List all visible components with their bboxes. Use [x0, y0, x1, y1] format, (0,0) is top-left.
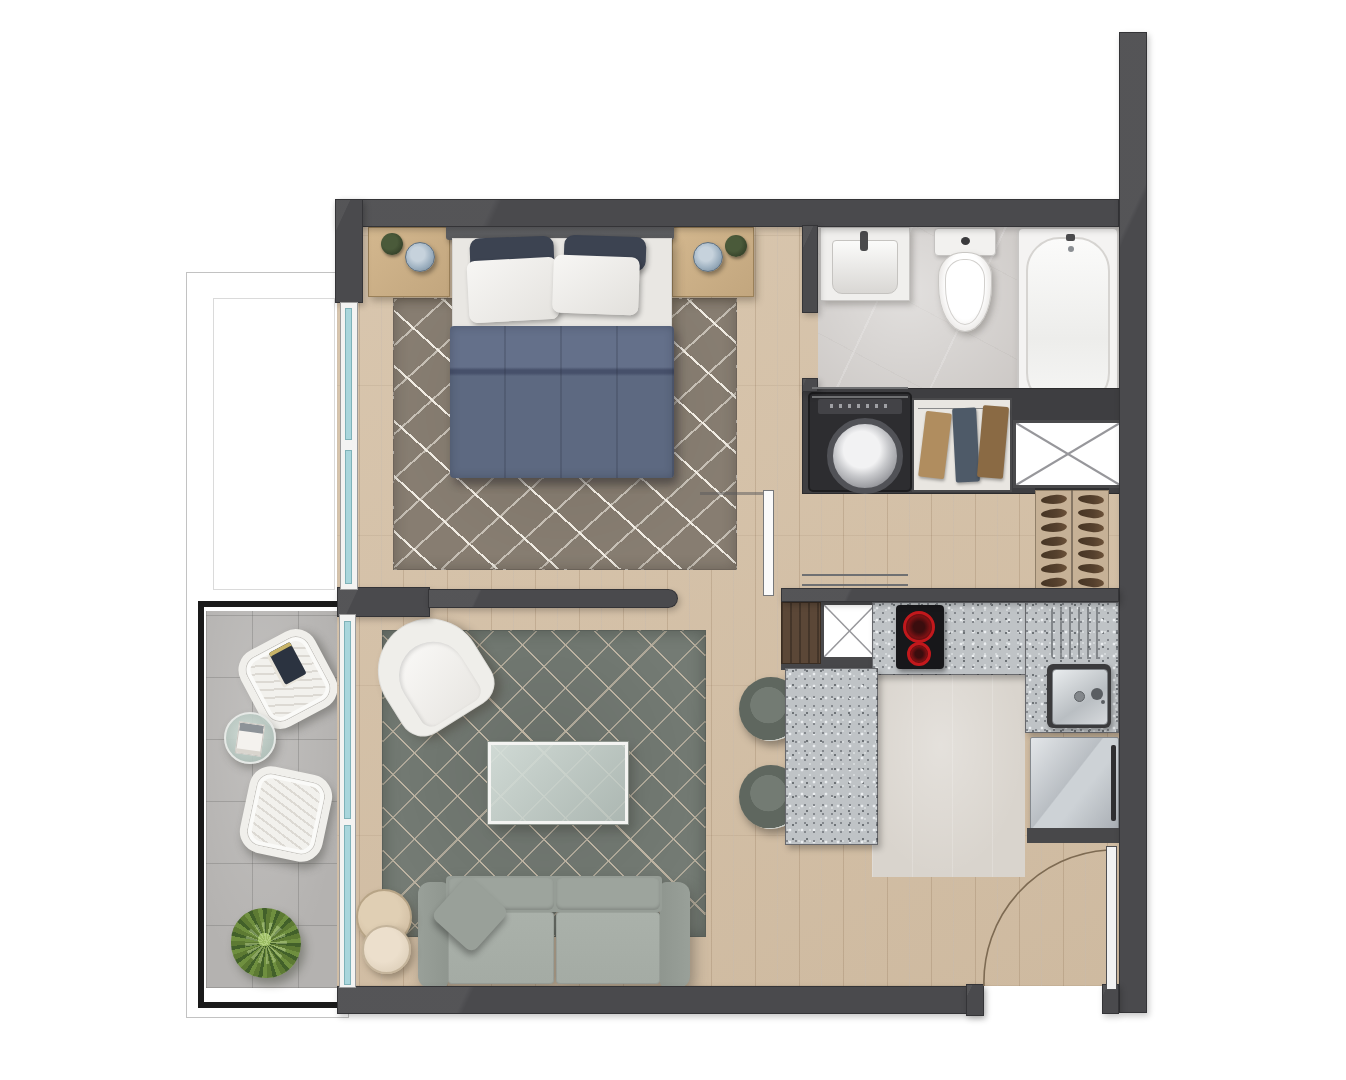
- shoe-icon: [1077, 494, 1104, 505]
- floor-plan-canvas: [0, 0, 1346, 1080]
- table-lamp-icon: [693, 242, 723, 272]
- chair-blanket: [250, 776, 322, 851]
- refrigerator: [1030, 737, 1119, 830]
- drain-icon: [1068, 246, 1074, 252]
- balcony-side-table: [224, 712, 276, 764]
- faucet-icon: [860, 231, 868, 251]
- potted-plant: [231, 908, 301, 978]
- shaft-x-icon: [824, 605, 875, 657]
- folded-clothes: [952, 407, 980, 482]
- wall-divider-block: [337, 587, 430, 617]
- nightstand-left: [368, 227, 450, 297]
- wall-bathroom-left: [802, 225, 818, 313]
- shoe-icon: [1077, 536, 1104, 547]
- shoe-icon: [1077, 522, 1104, 533]
- balcony-glass-wall: [339, 614, 356, 988]
- shoe-pair-row: [1035, 548, 1109, 562]
- sink-drain-icon: [1074, 691, 1085, 702]
- peninsula-counter: [785, 668, 878, 845]
- sofa-seat-cushion: [556, 912, 660, 984]
- entrance-door-swing-arc: [972, 842, 1122, 992]
- shoe-pair-row: [1035, 562, 1109, 576]
- sofa: [418, 876, 690, 990]
- shoe-icon: [1040, 577, 1067, 588]
- bedroom-sliding-door: [763, 490, 774, 596]
- shoe-icon: [1040, 494, 1067, 505]
- burner-icon: [903, 611, 935, 643]
- shoe-pair-row: [1035, 534, 1109, 548]
- plant-pot-icon: [381, 233, 403, 255]
- bathtub-basin: [1026, 237, 1110, 407]
- wall-top: [335, 199, 1119, 227]
- plant-pot-icon: [725, 235, 747, 257]
- sliding-door-track: [700, 492, 764, 495]
- shoe-icon: [1077, 577, 1104, 588]
- side-table-small: [362, 925, 411, 974]
- shoe-pair-row: [1035, 493, 1109, 507]
- sofa-back-cushion: [556, 878, 660, 910]
- bed-pillow-white: [552, 255, 640, 316]
- sofa-armrest: [660, 882, 690, 988]
- service-shaft-kitchen: [821, 602, 878, 660]
- wall-kitchen: [781, 588, 1119, 602]
- linen-closet: [912, 398, 1012, 492]
- shoe-icon: [1040, 536, 1067, 547]
- washing-machine: [808, 392, 912, 492]
- cooktop: [896, 605, 944, 669]
- fridge-handle: [1111, 745, 1116, 821]
- coffee-table: [488, 742, 628, 824]
- bed-duvet: [450, 326, 674, 478]
- burner-icon: [907, 642, 931, 666]
- shaft-x-icon: [1016, 423, 1120, 485]
- entrance-door-leaf: [1106, 846, 1117, 990]
- kitchen-tall-cabinet: [781, 602, 821, 664]
- glass-door-pane: [344, 621, 351, 819]
- kitchen-sink: [1047, 664, 1111, 728]
- service-shaft-bathroom: [1013, 420, 1123, 488]
- fridge-cabinet-edge: [1027, 828, 1119, 843]
- shoe-icon: [1040, 563, 1067, 574]
- shoe-icon: [1040, 522, 1067, 533]
- wall-right: [1119, 32, 1147, 1013]
- bathroom-sliding-door: [812, 387, 908, 398]
- shoe-icon: [1040, 508, 1067, 519]
- shoe-icon: [1077, 549, 1104, 560]
- shoe-icon: [1077, 563, 1104, 574]
- wall-left-upper: [335, 199, 363, 303]
- wall-bedroom-living-divider: [428, 589, 678, 608]
- shoe-pair-row: [1035, 520, 1109, 534]
- book-on-table: [235, 721, 265, 756]
- shoe-pair-row: [1035, 507, 1109, 521]
- folded-clothes: [918, 411, 952, 480]
- washer-control-panel: [818, 399, 902, 414]
- bed-pillow-white: [466, 257, 559, 324]
- hall-sliding-door: [802, 574, 908, 586]
- sink-drainboard: [1051, 607, 1105, 659]
- shoe-icon: [1040, 549, 1067, 560]
- glass-door-pane: [344, 825, 351, 985]
- faucet-icon: [1091, 688, 1103, 700]
- bedroom-window: [340, 302, 358, 590]
- faucet-icon: [1066, 234, 1075, 241]
- nightstand-right: [672, 227, 754, 297]
- window-glass-pane: [345, 450, 352, 584]
- folded-clothes: [977, 405, 1009, 479]
- flush-button-icon: [961, 237, 970, 245]
- shoe-icon: [1077, 508, 1104, 519]
- shoe-pair-row: [1035, 575, 1109, 589]
- wall-bottom: [337, 986, 982, 1014]
- adjacent-balcony-inner-line: [213, 298, 335, 590]
- sofa-armrest: [418, 882, 448, 988]
- window-glass-pane: [345, 308, 352, 440]
- washbasin: [820, 227, 910, 301]
- table-lamp-icon: [405, 242, 435, 272]
- washer-drum-icon: [827, 418, 903, 494]
- shoe-rack: [1035, 488, 1109, 592]
